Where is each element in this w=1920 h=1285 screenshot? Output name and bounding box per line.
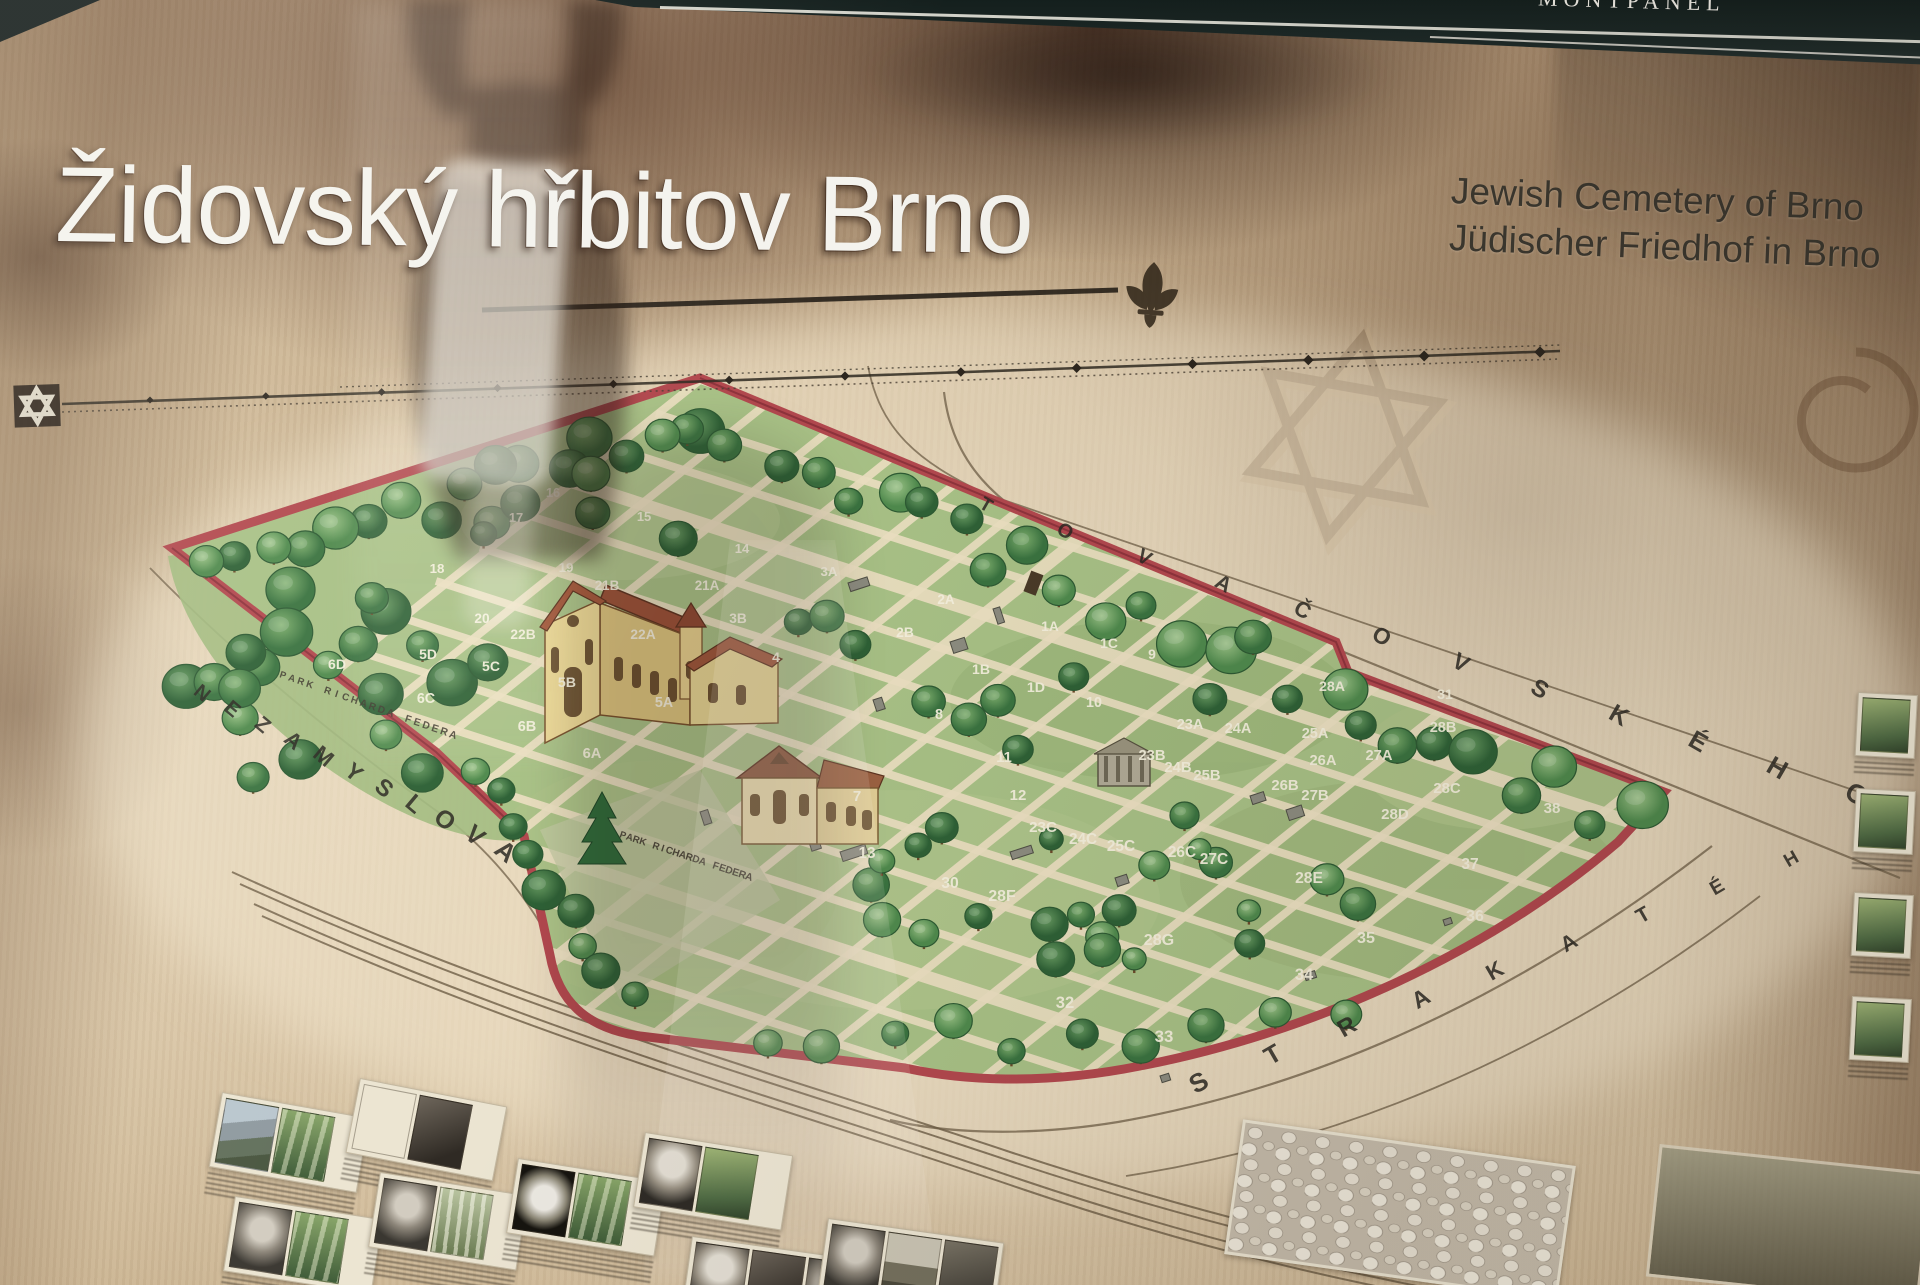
panel-photo: 161517143A1921B21A182022B22A3B45D6D5C5B6… — [0, 0, 1920, 1285]
glass-sheen — [0, 0, 1920, 1285]
